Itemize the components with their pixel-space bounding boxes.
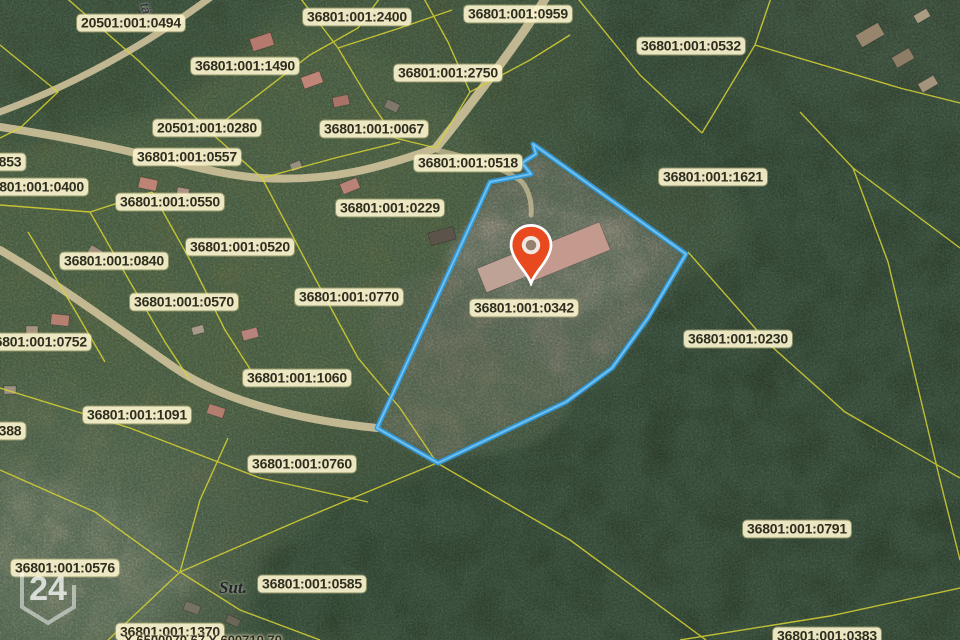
parcel-label: 36801:001:1060 <box>243 370 351 387</box>
parcel-label: 20501:001:0280 <box>153 120 261 137</box>
parcel-label: 36801:001:0520 <box>186 239 294 256</box>
parcel-label: 36801:001:0230 <box>684 331 792 348</box>
parcel-label: 36801:001:0770 <box>295 289 403 306</box>
parcel-labels-layer: 20501:001:049436801:001:240036801:001:09… <box>0 0 960 640</box>
parcel-label: 36801:001:0067 <box>320 121 428 138</box>
parcel-label: 853 <box>0 154 25 171</box>
parcel-label: 36801:001:0557 <box>133 149 241 166</box>
parcel-label: 388 <box>0 423 25 440</box>
parcel-label: 36801:001:0229 <box>336 200 444 217</box>
parcel-label: 36801:001:0585 <box>258 576 366 593</box>
parcel-label: 36801:001:0518 <box>414 155 522 172</box>
watermark-text: 24 <box>29 570 67 608</box>
pin-dot <box>526 240 537 251</box>
parcel-label: 36801:001:1490 <box>191 58 299 75</box>
parcel-label: 36801:001:1621 <box>659 169 767 186</box>
parcel-label: 36801:001:0570 <box>130 294 238 311</box>
parcel-label: 36801:001:1091 <box>83 407 191 424</box>
cadastral-map[interactable]: 20501:001:049436801:001:240036801:001:09… <box>0 0 960 640</box>
parcel-label: 36801:001:0383 <box>773 628 881 640</box>
parcel-label: 36801:001:0342 <box>470 300 578 317</box>
parcel-label: 36801:001:2400 <box>303 9 411 26</box>
parcel-label: 36801:001:0532 <box>637 38 745 55</box>
parcel-label: 20501:001:0494 <box>77 15 185 32</box>
watermark-logo: 24 <box>8 553 86 631</box>
parcel-label: 36801:001:0752 <box>0 334 91 351</box>
parcel-label: 36801:001:0760 <box>248 456 356 473</box>
parcel-label: 36801:001:0400 <box>0 179 88 196</box>
parcel-label: 36801:001:0550 <box>116 194 224 211</box>
parcel-label: 36801:001:0840 <box>60 253 168 270</box>
location-pin[interactable] <box>508 224 554 286</box>
parcel-label: 36801:001:0791 <box>743 521 851 538</box>
coordinates-readout: X 6500070,67 Y 600710,70 <box>124 633 282 640</box>
parcel-label: 36801:001:2750 <box>394 65 502 82</box>
parcel-label: 36801:001:0959 <box>464 6 572 23</box>
